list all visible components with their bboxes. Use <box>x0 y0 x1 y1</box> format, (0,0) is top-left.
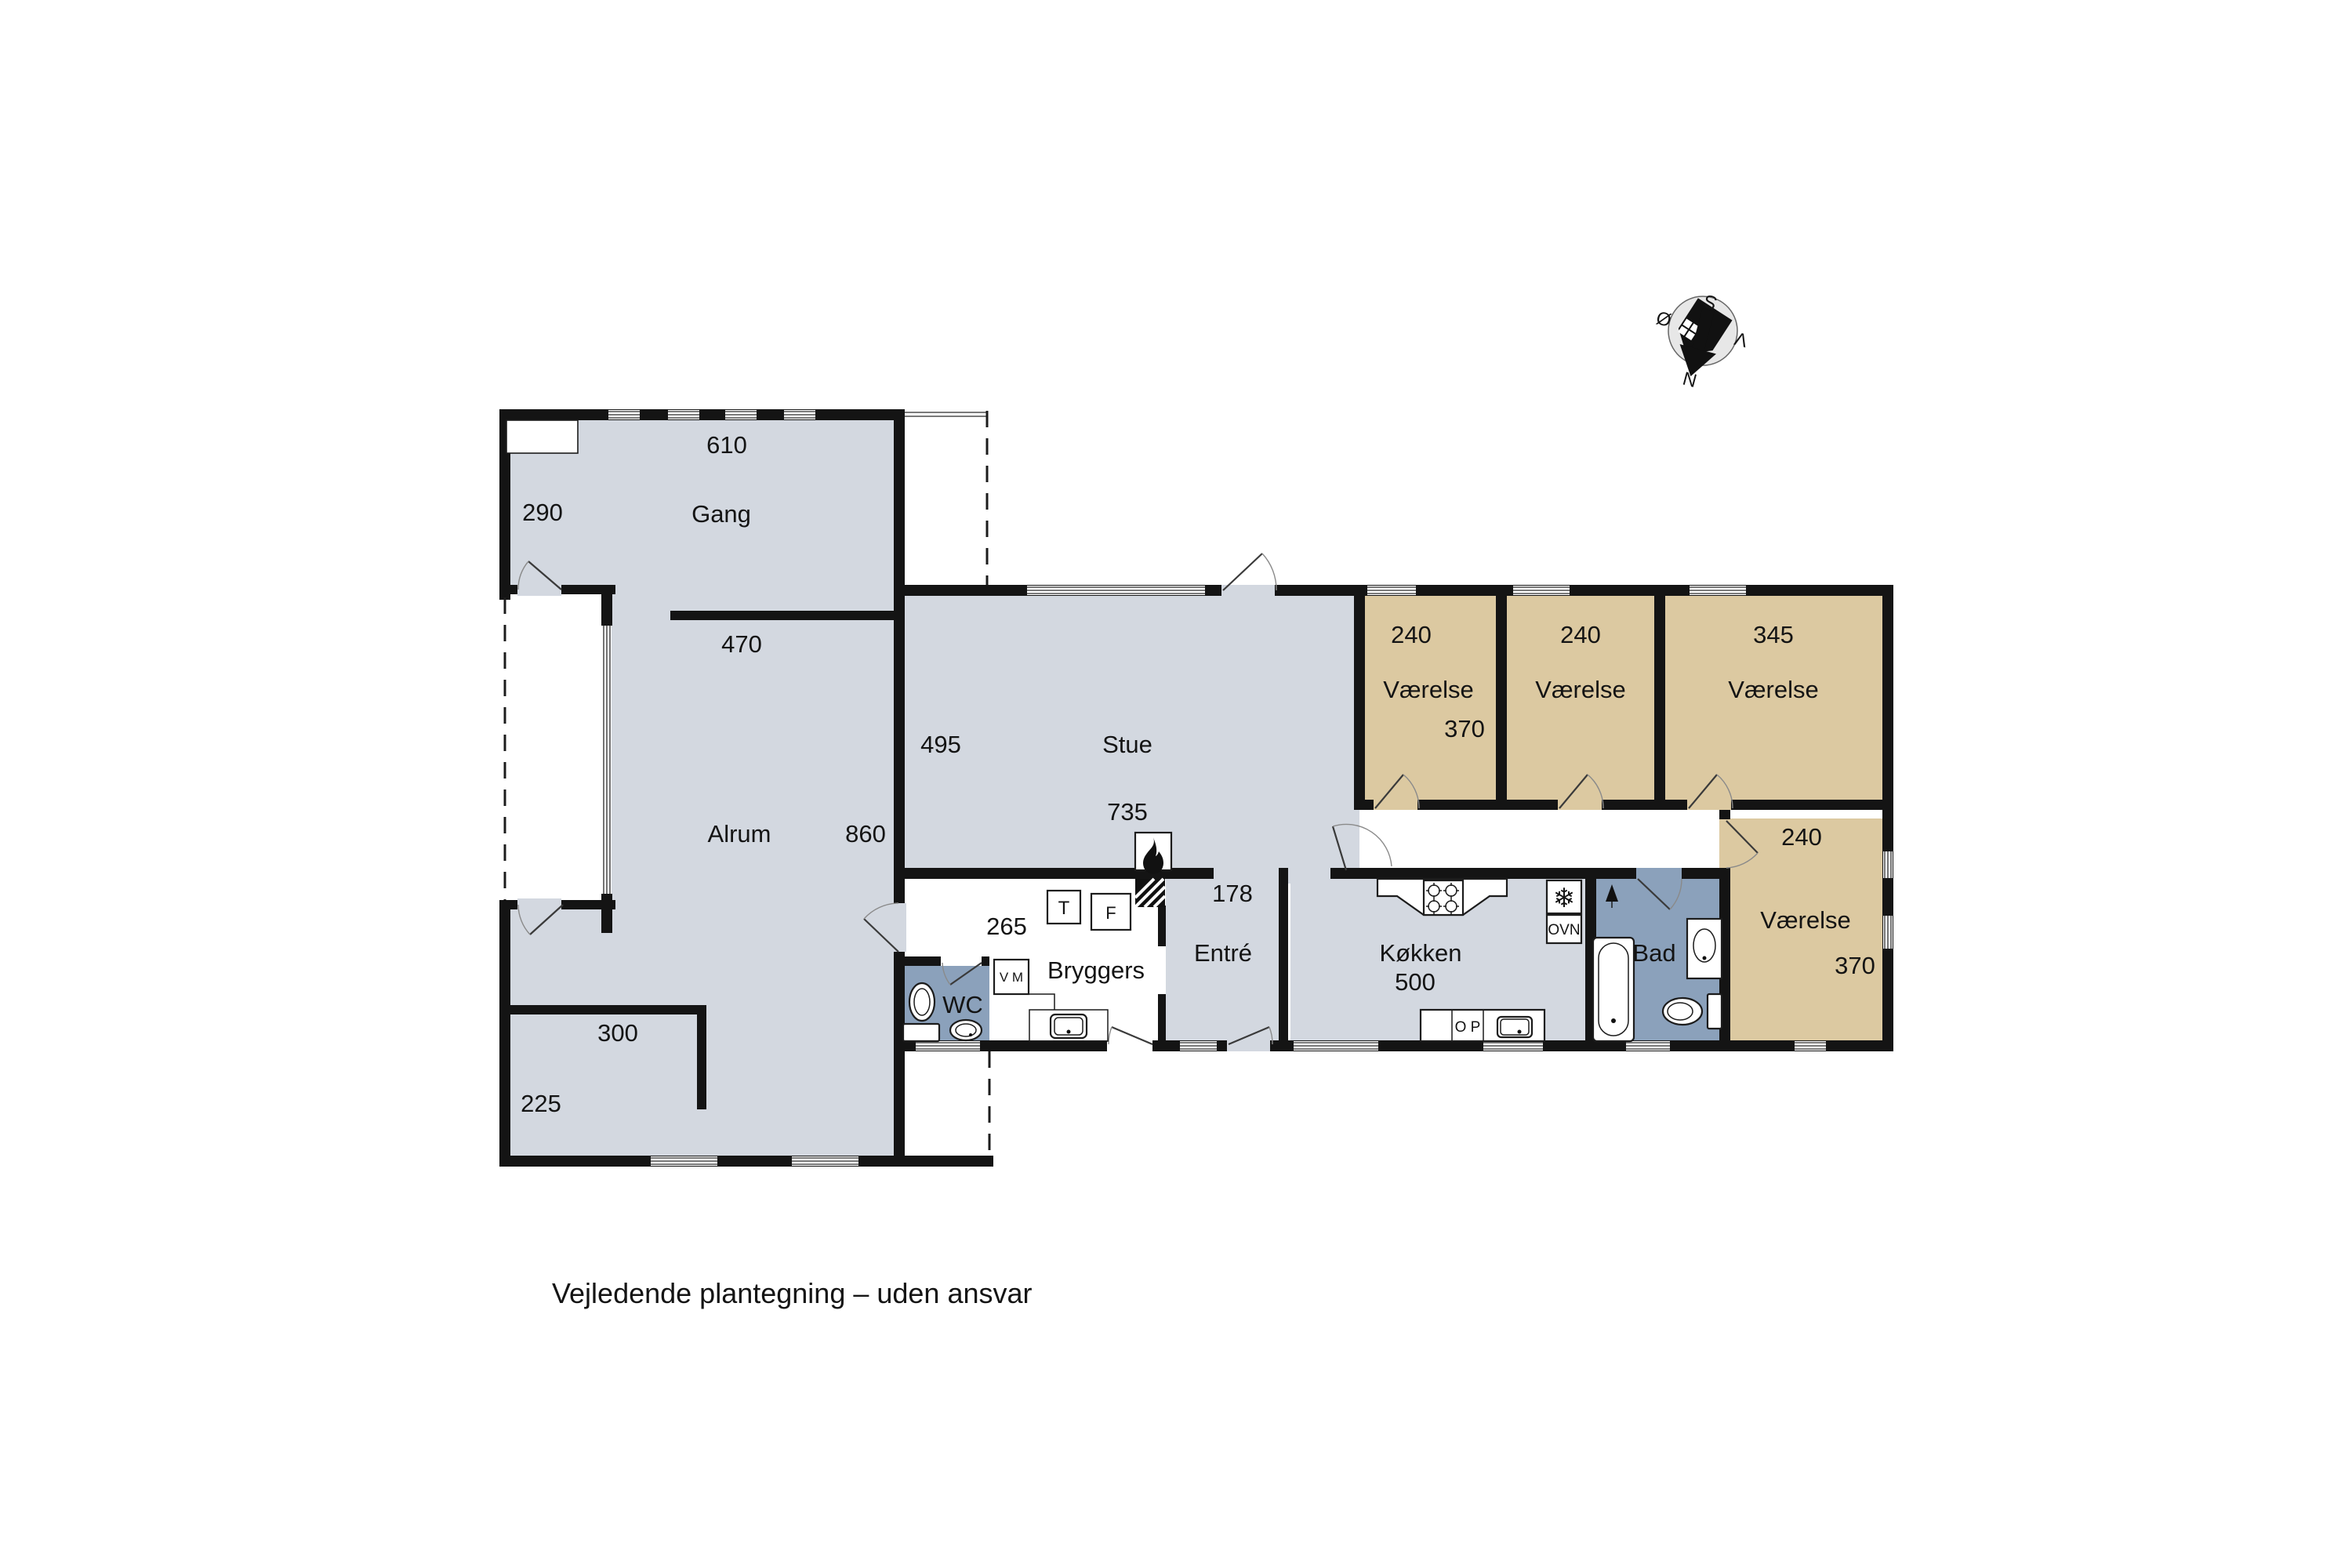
plan-shape <box>1882 585 1893 1051</box>
plan-shape <box>1067 1030 1071 1034</box>
plan-shape <box>1719 819 1730 868</box>
dim-bryggers: 265 <box>986 913 1027 940</box>
plan-shape <box>1496 594 1507 800</box>
chimney <box>1135 879 1165 907</box>
dim-vaerelse4-w: 240 <box>1781 823 1822 851</box>
fireplace-icon <box>1135 833 1171 874</box>
label-bryggers: Bryggers <box>1047 956 1145 984</box>
plan-shape <box>1703 956 1707 960</box>
dim-entre: 178 <box>1212 880 1253 907</box>
plan-shape <box>670 611 905 620</box>
plan-shape <box>499 1156 993 1167</box>
porch-floor <box>905 1051 989 1156</box>
dim-alrum-height: 860 <box>845 820 886 848</box>
plan-shape <box>1221 585 1275 596</box>
label-kokken: Køkken <box>1379 939 1461 967</box>
sink-icon <box>950 1020 982 1040</box>
plan-shape <box>1654 594 1665 800</box>
label-bad: Bad <box>1632 939 1675 967</box>
plan-shape <box>1518 1030 1522 1034</box>
plan-shape <box>499 409 904 420</box>
plan-shape <box>517 583 561 596</box>
plan-shape <box>601 590 612 626</box>
label-vaerelse2: Værelse <box>1535 676 1625 703</box>
label-dishwasher: O P <box>1455 1019 1481 1036</box>
dim-kokken: 500 <box>1395 968 1436 996</box>
label-washing-machine: V M <box>1000 970 1023 985</box>
label-gang: Gang <box>691 500 751 528</box>
label-dryer: T <box>1058 898 1070 919</box>
dim-nook-width: 300 <box>597 1019 638 1047</box>
label-stue: Stue <box>1102 731 1152 758</box>
disclaimer-text: Vejledende plantegning – uden ansvar <box>552 1277 1033 1309</box>
dim-vaerelse1-h: 370 <box>1444 715 1485 742</box>
plan-shape <box>1223 554 1262 590</box>
plan-shape <box>969 1033 972 1036</box>
dim-vaerelse1-w: 240 <box>1391 621 1432 648</box>
dim-vaerelse2-w: 240 <box>1560 621 1601 648</box>
plan-shape <box>517 898 561 911</box>
floor-plan: ❄ Gang 610 290 470 Alrum 860 300 225 Stu… <box>0 0 2352 1568</box>
label-alrum: Alrum <box>708 820 771 848</box>
dim-nook-side: 225 <box>521 1090 561 1117</box>
compass-north: N <box>1681 367 1700 391</box>
label-wc: WC <box>942 991 983 1018</box>
plan-shape <box>892 903 906 952</box>
vanity-sink-icon <box>1687 919 1722 978</box>
dim-vaerelse3-w: 345 <box>1753 621 1794 648</box>
label-oven: OVN <box>1548 922 1580 938</box>
compass-rose: N S Ø V <box>1641 279 1758 401</box>
plan-shape <box>941 956 982 966</box>
plan-shape <box>1354 585 1365 810</box>
label-vaerelse1: Værelse <box>1383 676 1473 703</box>
plan-shape: ❄ <box>1553 884 1576 913</box>
plan-shape <box>1158 994 1166 1043</box>
dim-gang-bottom: 470 <box>721 630 762 658</box>
plan-shape <box>1354 585 1893 596</box>
porch-edge <box>905 412 987 416</box>
label-vaerelse4: Værelse <box>1760 906 1850 934</box>
toilet-icon <box>1663 998 1702 1025</box>
plan-shape <box>499 900 510 1167</box>
door-stue-terrace <box>1223 554 1276 590</box>
dim-gang-side: 290 <box>522 499 563 526</box>
dim-vaerelse4-h: 370 <box>1835 952 1875 979</box>
terrace-floor <box>505 594 610 900</box>
plan-shape <box>601 894 612 933</box>
plan-shape <box>1611 1018 1616 1023</box>
dim-stue-width: 735 <box>1107 798 1148 826</box>
dim-gang-width: 610 <box>706 431 747 459</box>
plan-shape <box>1158 906 1166 946</box>
plan-shape <box>506 420 578 453</box>
plan-shape <box>894 409 905 1167</box>
plan-shape <box>1354 800 1893 810</box>
dim-stue-side: 495 <box>920 731 961 758</box>
plan-shape <box>505 1005 706 1014</box>
plan-shape <box>1708 994 1722 1029</box>
plan-shape <box>1636 868 1682 879</box>
label-vaerelse3: Værelse <box>1728 676 1818 703</box>
closet <box>506 420 578 453</box>
plan-shape <box>1262 554 1276 590</box>
label-entre: Entré <box>1194 939 1252 967</box>
label-freezer: F <box>1105 903 1116 923</box>
plan-shape <box>697 1005 706 1109</box>
plan-shape <box>903 1024 939 1041</box>
plan-shape <box>1279 868 1288 1051</box>
